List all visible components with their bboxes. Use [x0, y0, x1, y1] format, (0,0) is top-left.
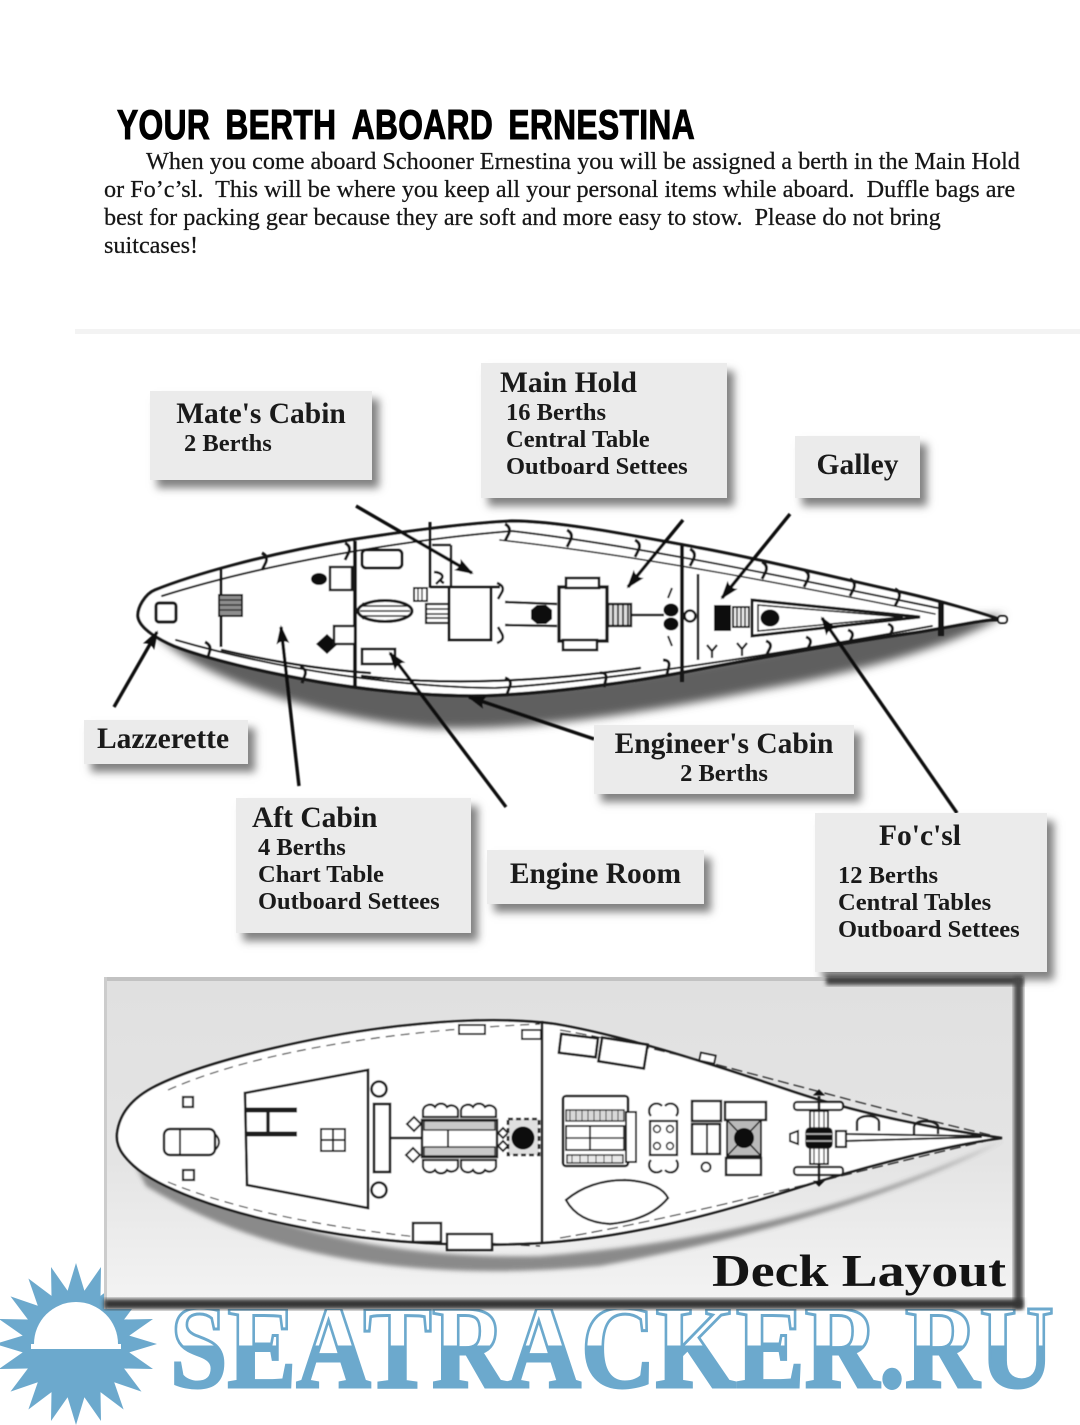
- svg-text:Deck Layout: Deck Layout: [712, 1245, 1007, 1296]
